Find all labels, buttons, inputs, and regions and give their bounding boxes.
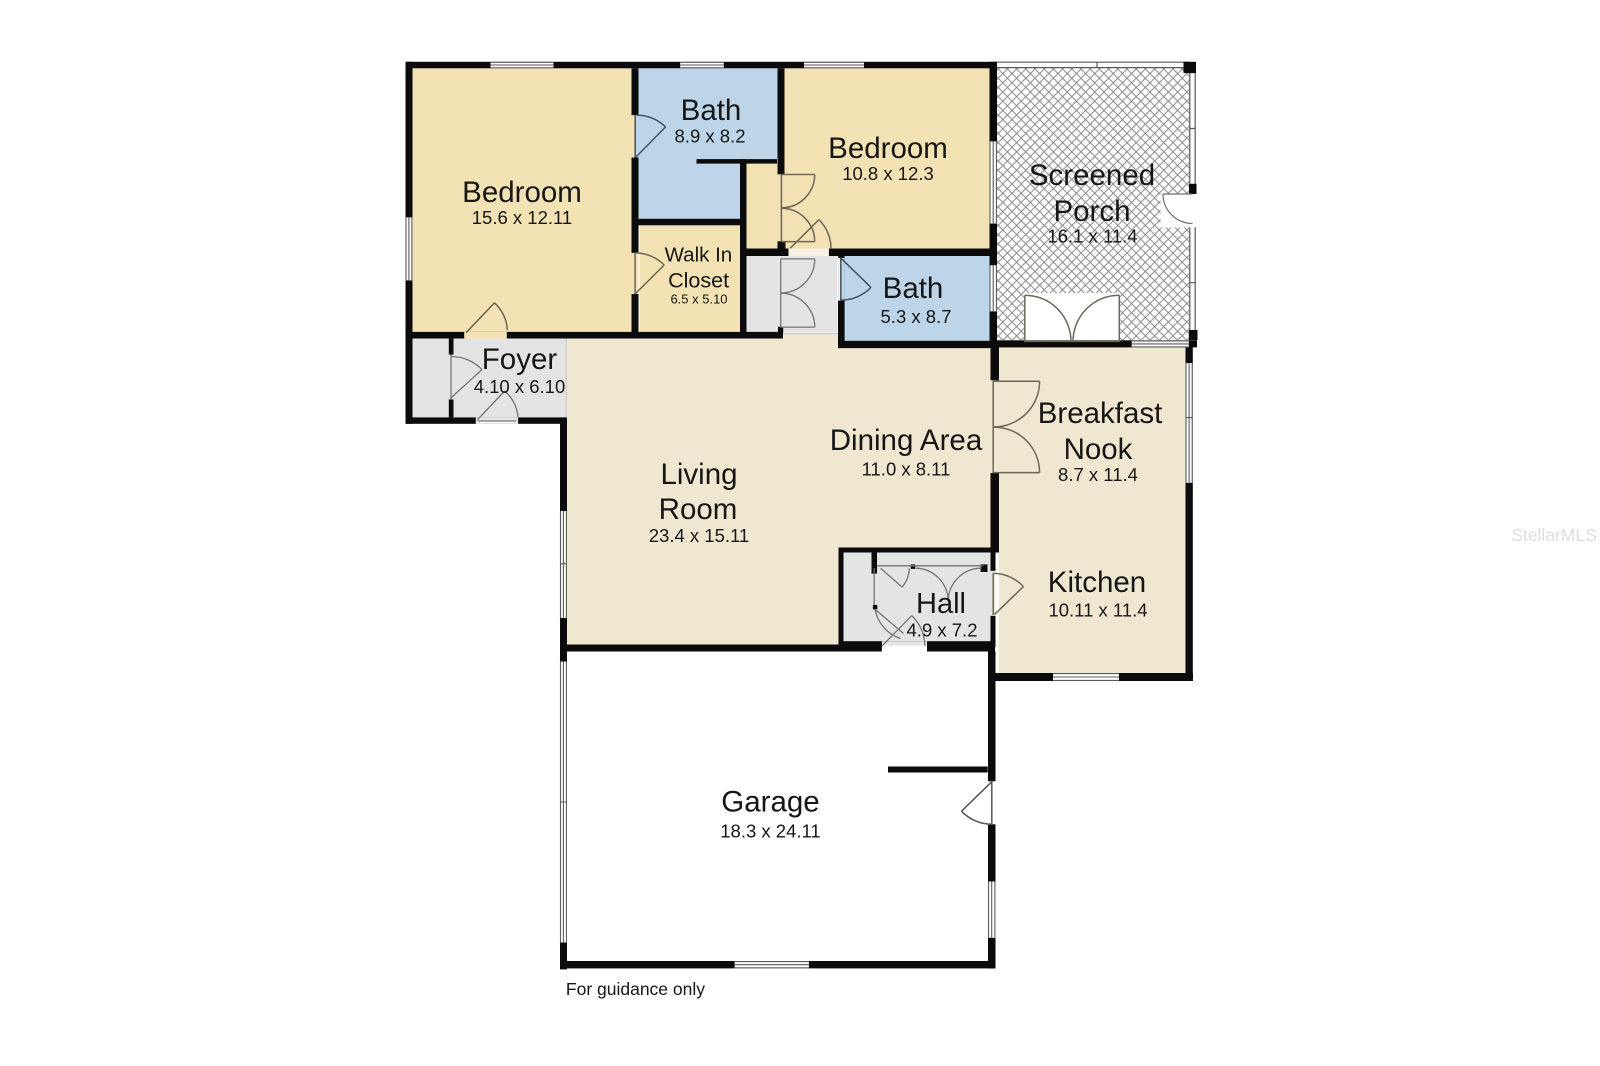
svg-text:4.10 x 6.10: 4.10 x 6.10 — [474, 376, 566, 397]
svg-text:Bath: Bath — [681, 94, 742, 127]
svg-text:5.3 x 8.7: 5.3 x 8.7 — [881, 306, 952, 327]
svg-text:10.11 x 11.4: 10.11 x 11.4 — [1048, 600, 1147, 621]
svg-text:Room: Room — [659, 493, 738, 526]
svg-text:8.7 x 11.4: 8.7 x 11.4 — [1058, 464, 1138, 485]
svg-text:Bedroom: Bedroom — [828, 132, 948, 165]
svg-text:Bath: Bath — [883, 272, 944, 305]
svg-text:10.8 x 12.3: 10.8 x 12.3 — [842, 163, 934, 184]
svg-text:Breakfast: Breakfast — [1038, 397, 1163, 430]
svg-text:Screened: Screened — [1029, 159, 1155, 192]
svg-text:16.1 x 11.4: 16.1 x 11.4 — [1047, 226, 1137, 247]
svg-text:4.9 x 7.2: 4.9 x 7.2 — [907, 620, 978, 641]
svg-text:8.9 x 8.2: 8.9 x 8.2 — [675, 126, 746, 147]
svg-text:18.3 x 24.11: 18.3 x 24.11 — [720, 821, 820, 842]
svg-text:StellarMLS: StellarMLS — [1511, 525, 1597, 545]
svg-text:Living: Living — [660, 458, 737, 491]
svg-text:Garage: Garage — [721, 786, 819, 819]
svg-text:23.4 x 15.11: 23.4 x 15.11 — [649, 525, 749, 546]
svg-text:Closet: Closet — [668, 269, 729, 293]
svg-text:Walk In: Walk In — [665, 244, 733, 267]
svg-text:Bedroom: Bedroom — [462, 176, 582, 209]
svg-text:6.5 x 5.10: 6.5 x 5.10 — [670, 292, 727, 307]
svg-text:Kitchen: Kitchen — [1048, 566, 1146, 599]
svg-text:15.6 x 12.11: 15.6 x 12.11 — [472, 207, 572, 228]
svg-text:For guidance only: For guidance only — [566, 979, 705, 999]
svg-text:Dining Area: Dining Area — [830, 424, 983, 457]
svg-text:Porch: Porch — [1053, 195, 1130, 228]
svg-text:Hall: Hall — [916, 588, 966, 620]
svg-text:Foyer: Foyer — [482, 343, 558, 376]
svg-text:Nook: Nook — [1064, 433, 1133, 466]
svg-text:11.0 x 8.11: 11.0 x 8.11 — [862, 459, 951, 480]
